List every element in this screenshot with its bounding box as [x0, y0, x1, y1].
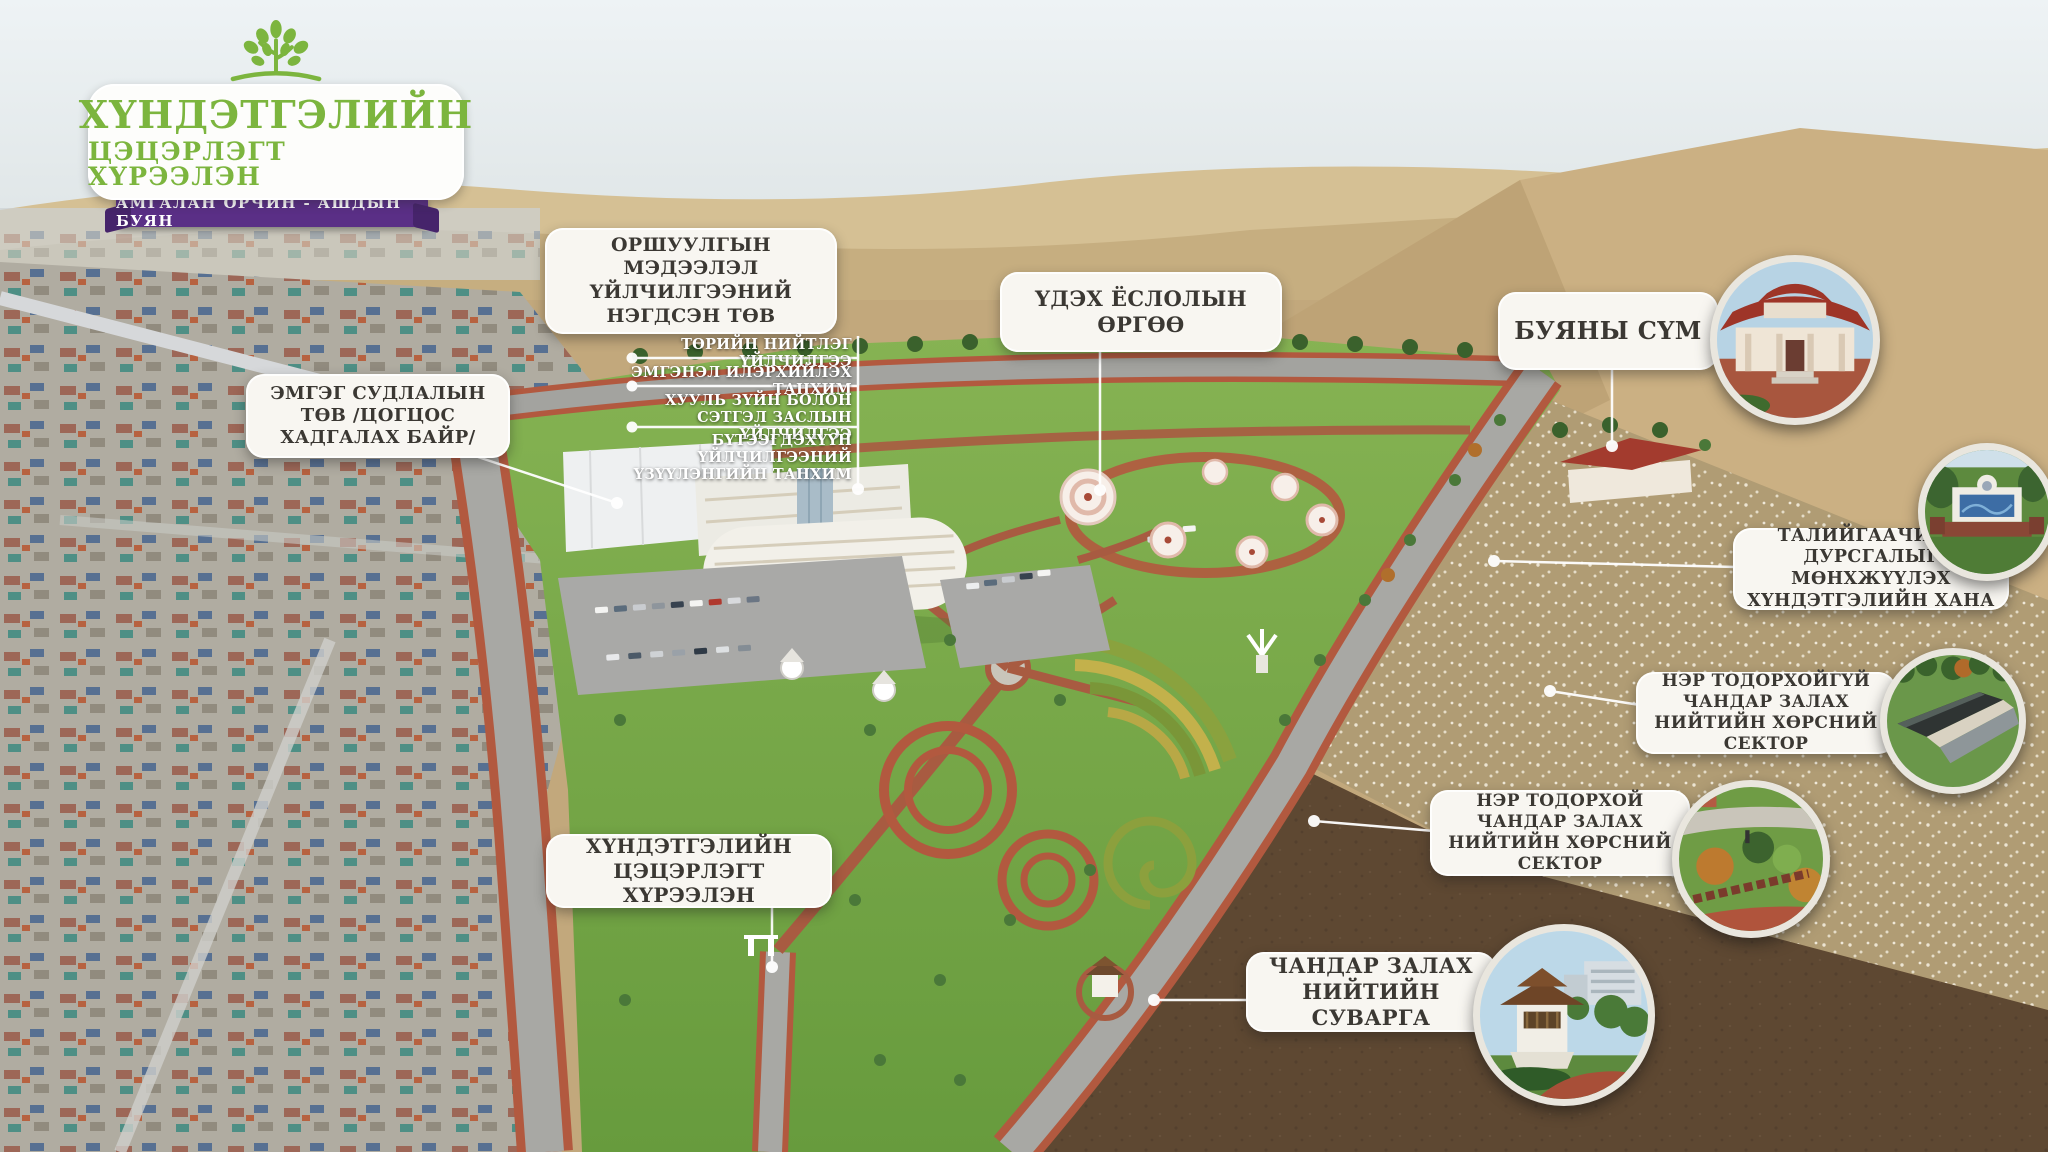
- public-stupa-photo: [1473, 924, 1655, 1106]
- callout-pathology-center: ЭМГЭГ СУДЛАЛЫН ТӨВ /ЦОГЦОС ХАДГАЛАХ БАЙР…: [246, 374, 510, 458]
- callout-memorial-park: ХҮНДЭТГЭЛИЙН ЦЭЦЭРЛЭГТ ХҮРЭЭЛЭН: [546, 834, 832, 908]
- callout-info-center: ОРШУУЛГЫН МЭДЭЭЛЭЛ ҮЙЛЧИЛГЭЭНИЙ НЭГДСЭН …: [545, 228, 837, 334]
- callout-virtue-temple: БУЯНЫ СҮМ: [1498, 292, 1718, 370]
- callout-unnamed-ash-sector: НЭР ТОДОРХОЙГҮЙ ЧАНДАР ЗАЛАХ НИЙТИЙН ХӨР…: [1636, 672, 1896, 754]
- callout-farewell-palace: ҮДЭХ ЁСЛОЛЫН ӨРГӨӨ: [1000, 272, 1282, 352]
- callout-named-ash-sector: НЭР ТОДОРХОЙ ЧАНДАР ЗАЛАХ НИЙТИЙН ХӨРСНИ…: [1430, 790, 1690, 876]
- memorial-wall-photo: [1918, 443, 2048, 581]
- named-ash-sector-photo: [1672, 780, 1830, 938]
- virtue-temple-photo: [1710, 255, 1880, 425]
- logo-title-line2: ЦЭЦЭРЛЭГТ ХҮРЭЭЛЭН: [88, 139, 464, 189]
- logo-title-line1: ХҮНДЭТГЭЛИЙН: [79, 96, 474, 134]
- masterplan-poster: ХҮНДЭТГЭЛИЙН ЦЭЦЭРЛЭГТ ХҮРЭЭЛЭН АМГАЛАН …: [0, 0, 2048, 1152]
- logo-plaque: ХҮНДЭТГЭЛИЙН ЦЭЦЭРЛЭГТ ХҮРЭЭЛЭН: [88, 84, 464, 200]
- callout-public-stupa: ЧАНДАР ЗАЛАХ НИЙТИЙН СУВАРГА: [1246, 952, 1496, 1032]
- unnamed-ash-sector-photo: [1880, 648, 2026, 794]
- logo-tagline-ribbon: АМГАЛАН ОРЧИН - АШДЫН БУЯН: [116, 197, 428, 227]
- service-label-product-showroom: БҮТЭЭГДЭХҮҮН ҮЙЛЧИЛГЭЭНИЙ ҮЗҮҮЛЭНГИЙН ТА…: [600, 432, 852, 483]
- tree-logo-icon: [198, 20, 354, 88]
